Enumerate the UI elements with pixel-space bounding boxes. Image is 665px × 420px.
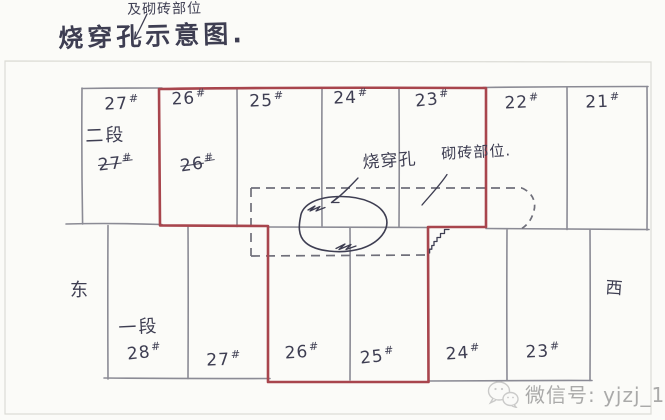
cell-number: 26 — [284, 342, 309, 364]
diagram-title: 烧穿孔示意图. — [58, 21, 246, 52]
east-label: 东 — [70, 282, 90, 301]
top-cell-label-23: 23# — [414, 87, 451, 111]
paper-border — [5, 61, 651, 414]
section-2-label: 二段 — [85, 127, 126, 147]
hash-mark: # — [129, 92, 140, 105]
wechat-icon — [487, 380, 519, 408]
cell-number: 28 — [126, 342, 152, 364]
cell-number: 24 — [445, 343, 470, 365]
cell-number: 22 — [504, 92, 529, 113]
top-annotation: 及砌砖部位 — [127, 2, 202, 18]
burn-hole-label: 烧穿孔 — [362, 151, 417, 173]
step-break-line — [430, 230, 449, 254]
cell-number: 25 — [359, 346, 385, 368]
bottom-cell-label-23: 23# — [525, 340, 561, 362]
hash-mark: # — [610, 90, 621, 103]
hash-mark: # — [383, 343, 395, 357]
cell-number: 25 — [249, 91, 273, 112]
top-cell-label-21: 21# — [585, 91, 621, 113]
cell-number: 23 — [414, 89, 440, 111]
hash-mark: # — [309, 340, 320, 354]
burn-hole-circle — [299, 197, 387, 252]
brick-area-leader-line — [422, 175, 447, 206]
crossed-out-label-27: 27# — [97, 151, 134, 175]
diagram-strokes — [0, 0, 665, 420]
watermark-text: 微信号: yjzj_13 — [525, 379, 665, 408]
hash-mark: # — [438, 86, 450, 100]
hash-mark: # — [150, 339, 162, 353]
bottom-cell-label-26: 26# — [284, 341, 320, 364]
bottom-cell-label-24: 24# — [445, 342, 481, 365]
top-cell-label-24: 24# — [333, 87, 369, 109]
cell-number: 23 — [525, 341, 550, 362]
cell-number: 27 — [206, 350, 230, 371]
burn-hole-arrow — [332, 178, 359, 203]
section-1-label: 一段 — [118, 318, 159, 339]
hash-mark: # — [470, 341, 481, 355]
hand-drawn-diagram: 及砌砖部位 烧穿孔示意图. 27# 26# 25# 24# 23# 22# 21… — [0, 0, 665, 420]
hash-mark: # — [203, 150, 215, 164]
hash-mark: # — [550, 339, 561, 353]
west-label: 西 — [605, 280, 624, 299]
top-cell-label-27: 27# — [104, 93, 140, 115]
bottom-cell-label-27: 27# — [206, 349, 242, 371]
cell-number: 27 — [97, 153, 123, 175]
hash-mark: # — [274, 89, 285, 102]
cell-number: 27 — [104, 94, 128, 115]
top-cell-label-25: 25# — [249, 90, 285, 112]
bottom-cell-label-25: 25# — [359, 344, 396, 368]
top-row-grid — [66, 87, 649, 231]
hash-mark: # — [358, 86, 369, 99]
hash-mark: # — [231, 348, 242, 361]
watermark: 微信号: yjzj_13 — [487, 379, 665, 408]
cell-number: 26 — [171, 88, 196, 109]
top-cell-label-26: 26# — [171, 87, 207, 109]
cell-number: 21 — [585, 92, 609, 113]
hash-mark: # — [196, 86, 207, 100]
brick-area-label: 砌砖部位. — [441, 143, 512, 162]
hash-mark: # — [121, 150, 133, 164]
bottom-cell-label-28: 28# — [126, 340, 163, 364]
hash-mark: # — [529, 90, 540, 104]
brick-area-dashed-outline — [251, 188, 535, 256]
circle-scribble-bottom — [336, 244, 356, 250]
cell-number: 24 — [333, 88, 357, 109]
cell-number: 26 — [179, 153, 205, 176]
top-cell-label-22: 22# — [504, 91, 540, 113]
